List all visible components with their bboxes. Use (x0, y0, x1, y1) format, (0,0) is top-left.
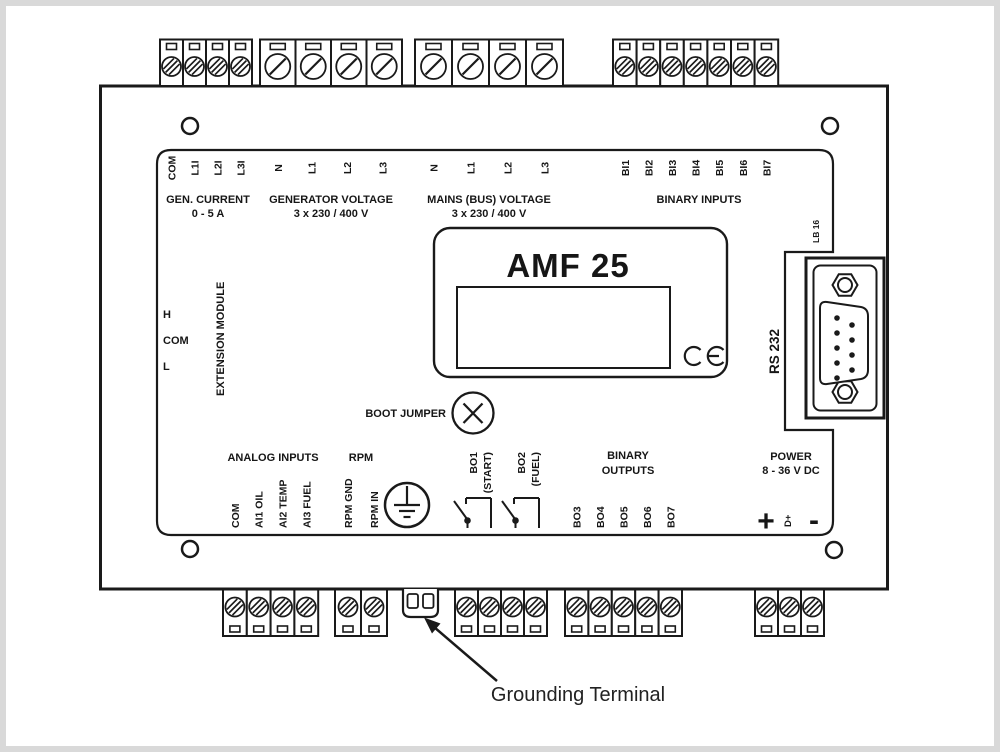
terminal-label-bi4: BI4 (691, 160, 703, 177)
terminal-label-genv-l2: L2 (342, 162, 354, 174)
screw-terminal (478, 590, 501, 637)
screw-terminal (160, 40, 183, 87)
terminal-label-ai-com: COM (230, 503, 242, 528)
dsub-shell (820, 302, 868, 384)
section-title-gen-current: GEN. CURRENT (166, 194, 250, 206)
screw-terminal (335, 590, 361, 637)
screw-terminal (778, 590, 801, 637)
screw-terminal (294, 590, 318, 637)
screw-terminal (524, 590, 547, 637)
terminal-label-mains-l2: L2 (503, 162, 515, 174)
screw-terminal (455, 590, 478, 637)
section-sub-power: 8 - 36 V DC (762, 465, 820, 477)
diagram-canvas: AMF 25 BOOT JUMPER (0, 0, 1000, 752)
screw-terminal (660, 40, 684, 87)
section-title-binary-inputs: BINARY INPUTS (657, 194, 742, 206)
grounding-terminal-tab (403, 589, 438, 617)
screw-terminal (612, 590, 635, 637)
section-title-power: POWER (770, 451, 812, 463)
terminal-label-ext-h: H (163, 309, 171, 321)
screw-terminal (501, 590, 524, 637)
screw-terminal (565, 590, 588, 637)
terminal-label-ct-l2: L2I (213, 160, 225, 175)
terminal-label-bi2: BI2 (643, 160, 655, 177)
screw-terminal (229, 40, 252, 87)
terminal-label-bi1: BI1 (620, 160, 632, 177)
terminal-label-bo5: BO5 (619, 506, 631, 528)
terminal-label-ct-com: COM (167, 156, 179, 181)
screw-terminal (247, 590, 271, 637)
screw-terminal (367, 40, 403, 87)
section-title-rpm: RPM (349, 452, 373, 464)
board-revision-label: LB 16 (811, 220, 821, 243)
terminal-label-ai1-oil: AI1 OIL (254, 491, 266, 528)
screw-terminal (206, 40, 229, 87)
terminal-label-bo1: BO1 (468, 452, 480, 474)
terminal-label-bo2: BO2 (516, 452, 528, 474)
terminal-label-ct-l3: L3I (236, 160, 248, 175)
terminal-label-genv-n: N (273, 164, 285, 172)
screw-terminal (296, 40, 332, 87)
mounting-hole (182, 541, 198, 557)
section-title-analog-inputs: ANALOG INPUTS (227, 452, 318, 464)
screw-terminal (361, 590, 387, 637)
section-title-extension-module: EXTENSION MODULE (215, 282, 227, 396)
terminal-label-rpm-in: RPM IN (369, 491, 381, 528)
terminal-label-genv-l1: L1 (306, 162, 318, 174)
screw-terminal (659, 590, 682, 637)
rs232-connector (806, 258, 884, 418)
screw-terminal (489, 40, 526, 87)
screw-terminal (731, 40, 755, 87)
screw-terminal (183, 40, 206, 87)
screw-terminal (452, 40, 489, 87)
terminal-label-ct-l1: L1I (190, 160, 202, 175)
screw-terminal (526, 40, 563, 87)
screw-terminal (707, 40, 731, 87)
terminal-label-ai3-fuel: AI3 FUEL (301, 481, 313, 528)
screw-terminal (637, 40, 661, 87)
terminal-label-genv-l3: L3 (377, 162, 389, 174)
terminal-label-bo6: BO6 (642, 506, 654, 528)
section-sub-mains-voltage: 3 x 230 / 400 V (452, 208, 527, 220)
terminal-label-bi6: BI6 (738, 160, 750, 177)
terminal-label-bi7: BI7 (761, 160, 773, 177)
grounding-terminal-label: Grounding Terminal (491, 684, 665, 706)
section-title-binary-outputs-2: OUTPUTS (602, 465, 655, 477)
terminal-label-mains-n: N (429, 164, 441, 172)
screw-terminal (271, 590, 295, 637)
mounting-hole (826, 542, 842, 558)
terminal-label-power-minus: - (809, 504, 819, 537)
terminal-label-bi5: BI5 (714, 160, 726, 177)
terminal-label-bo4: BO4 (595, 506, 607, 528)
amf25-terminal-diagram: AMF 25 BOOT JUMPER (0, 0, 1000, 752)
terminal-label-bo2-fn: (FUEL) (530, 452, 542, 486)
mounting-hole (822, 118, 838, 134)
screw-terminal (755, 40, 779, 87)
section-sub-gen-voltage: 3 x 230 / 400 V (294, 208, 369, 220)
terminal-label-bo7: BO7 (665, 506, 677, 528)
screw-terminal (613, 40, 637, 87)
screw-terminal (684, 40, 708, 87)
terminal-label-ext-com: COM (163, 335, 189, 347)
screw-terminal (635, 590, 658, 637)
section-title-binary-outputs-1: BINARY (607, 450, 649, 462)
mounting-hole (182, 118, 198, 134)
boot-jumper-label: BOOT JUMPER (365, 408, 446, 420)
terminal-label-mains-l1: L1 (466, 162, 478, 174)
section-title-mains-voltage: MAINS (BUS) VOLTAGE (427, 194, 551, 206)
section-title-gen-voltage: GENERATOR VOLTAGE (269, 194, 393, 206)
terminal-label-power-plus: + (757, 505, 775, 538)
terminal-label-ext-l: L (163, 361, 170, 373)
screw-terminal (331, 40, 367, 87)
rs232-label: RS 232 (767, 329, 782, 374)
terminal-label-bo1-fn: (START) (482, 452, 494, 493)
screw-terminal (588, 590, 611, 637)
terminal-label-power-dplus: D+ (783, 514, 794, 527)
screw-terminal (801, 590, 824, 637)
terminal-label-bi3: BI3 (667, 160, 679, 177)
terminal-label-ai2-temp: AI2 TEMP (278, 480, 290, 528)
terminal-label-mains-l3: L3 (540, 162, 552, 174)
model-name: AMF 25 (506, 247, 629, 284)
terminal-label-rpm-gnd: RPM GND (343, 478, 355, 528)
screw-terminal (415, 40, 452, 87)
section-sub-gen-current: 0 - 5 A (192, 208, 225, 220)
screw-terminal (223, 590, 247, 637)
screw-terminal (260, 40, 296, 87)
screw-terminal (755, 590, 778, 637)
terminal-label-bo3: BO3 (572, 506, 584, 528)
